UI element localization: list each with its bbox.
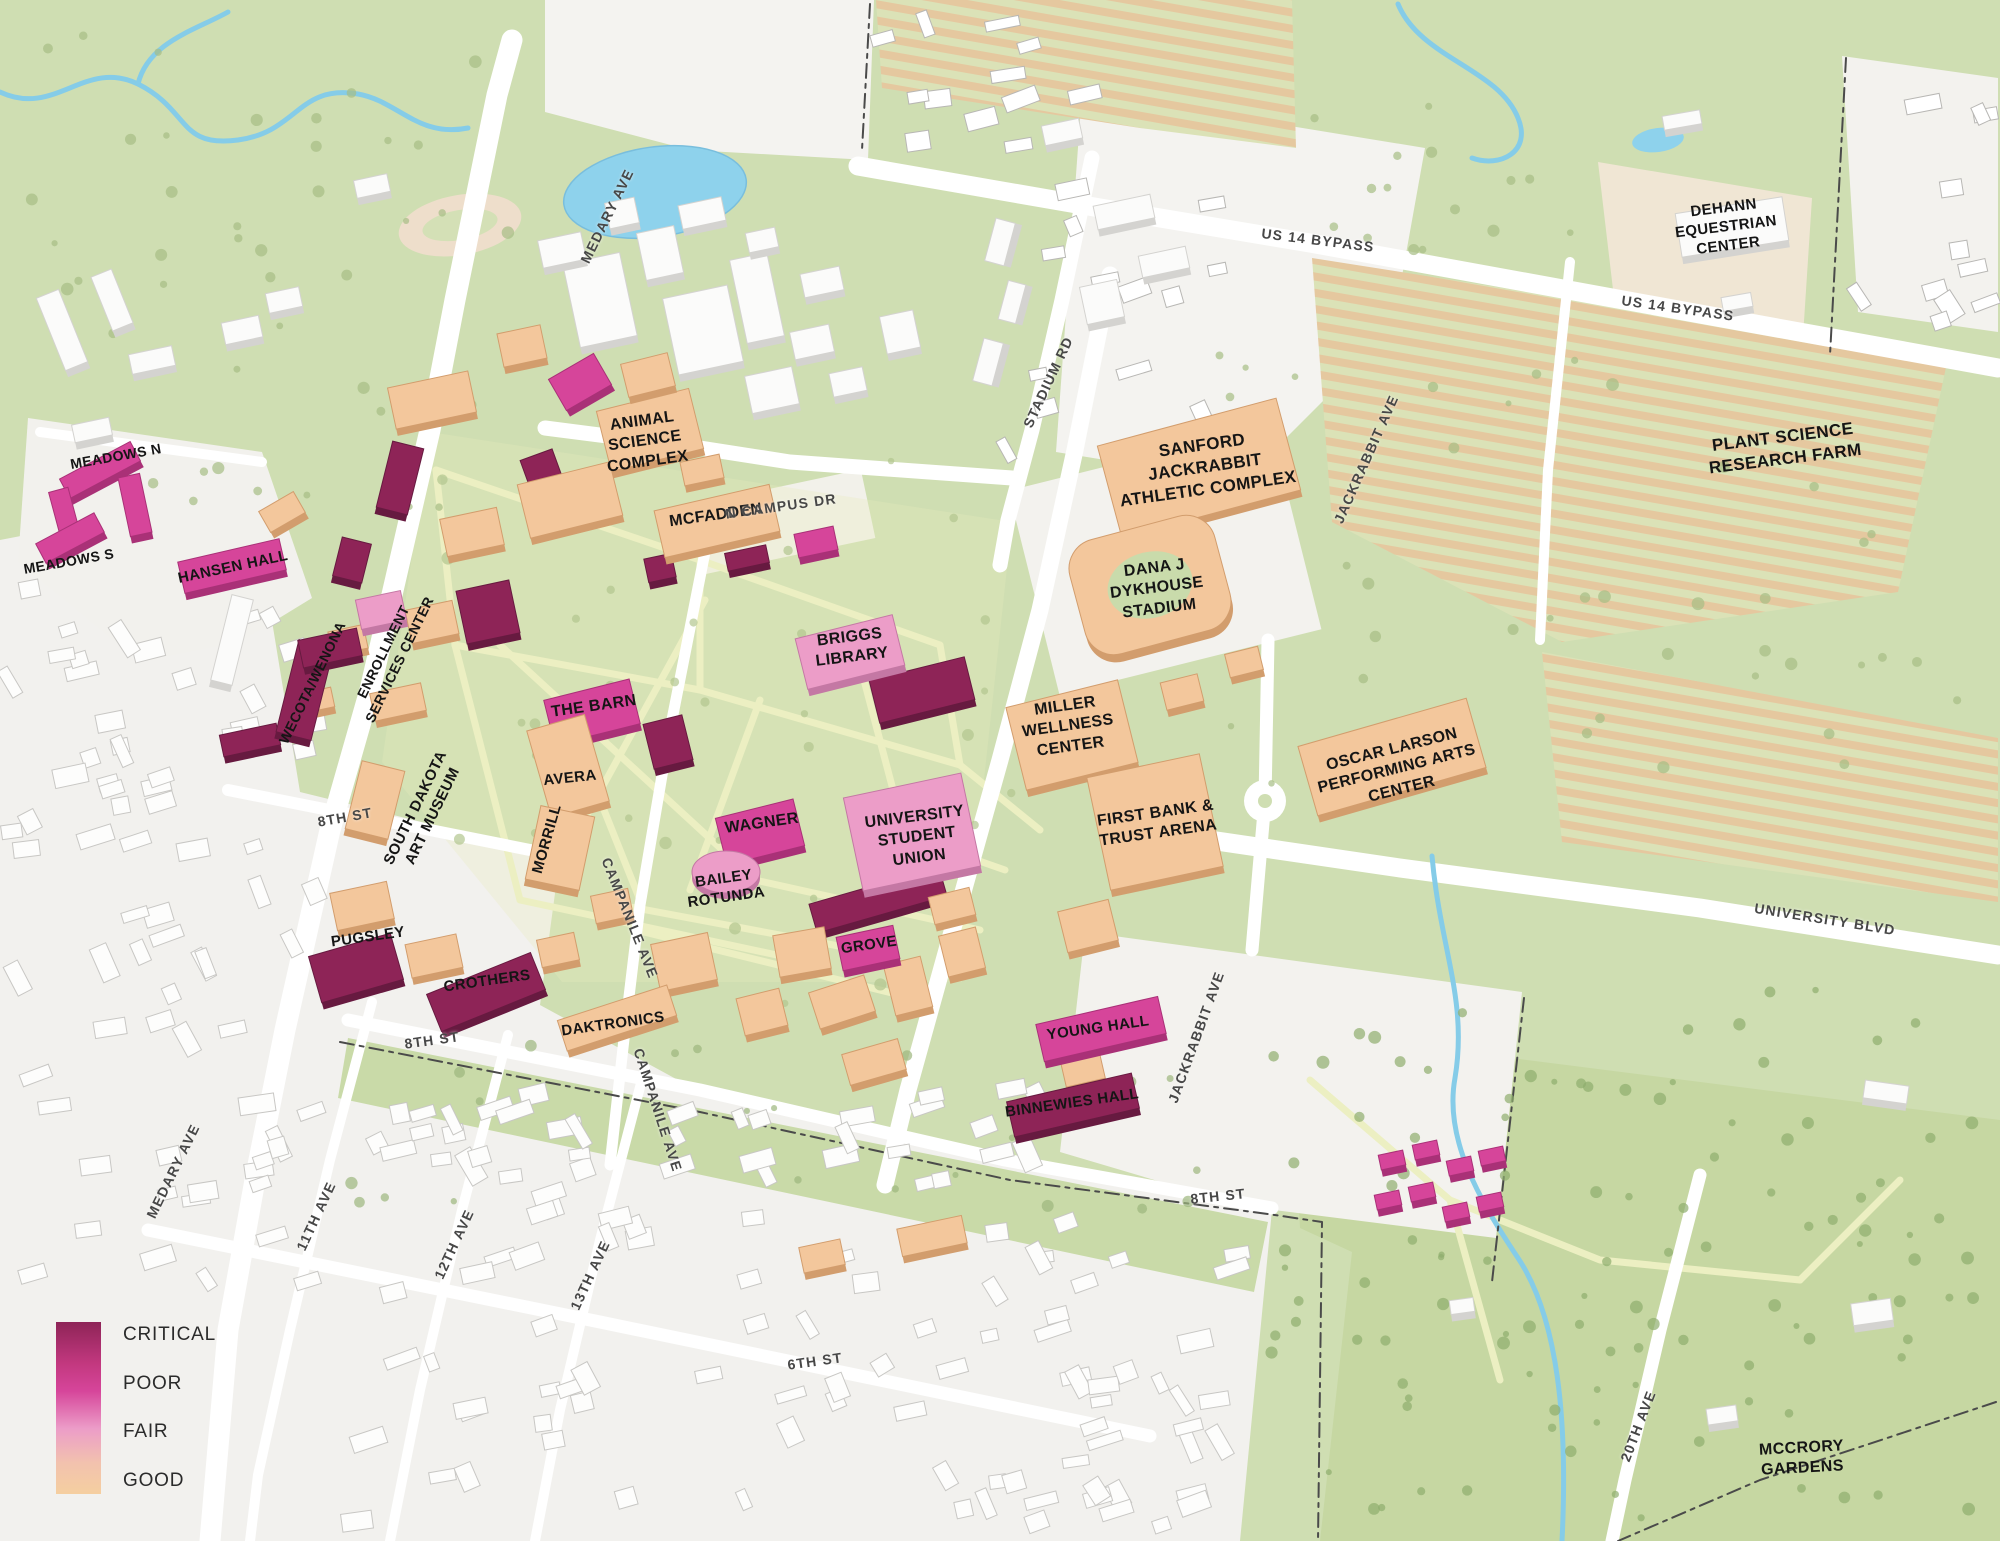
map-legend: CRITICAL POOR FAIR GOOD: [56, 1322, 216, 1494]
legend-item-fair: FAIR: [123, 1421, 216, 1443]
legend-gradient-bar: [56, 1322, 101, 1494]
legend-item-good: GOOD: [123, 1470, 216, 1492]
legend-item-critical: CRITICAL: [123, 1324, 216, 1346]
legend-items: CRITICAL POOR FAIR GOOD: [123, 1322, 216, 1494]
campus-map: MEADOWS NMEADOWS SHANSEN HALLWECOTA/WENO…: [0, 0, 2000, 1541]
map-canvas: [0, 0, 2000, 1541]
legend-item-poor: POOR: [123, 1373, 216, 1395]
